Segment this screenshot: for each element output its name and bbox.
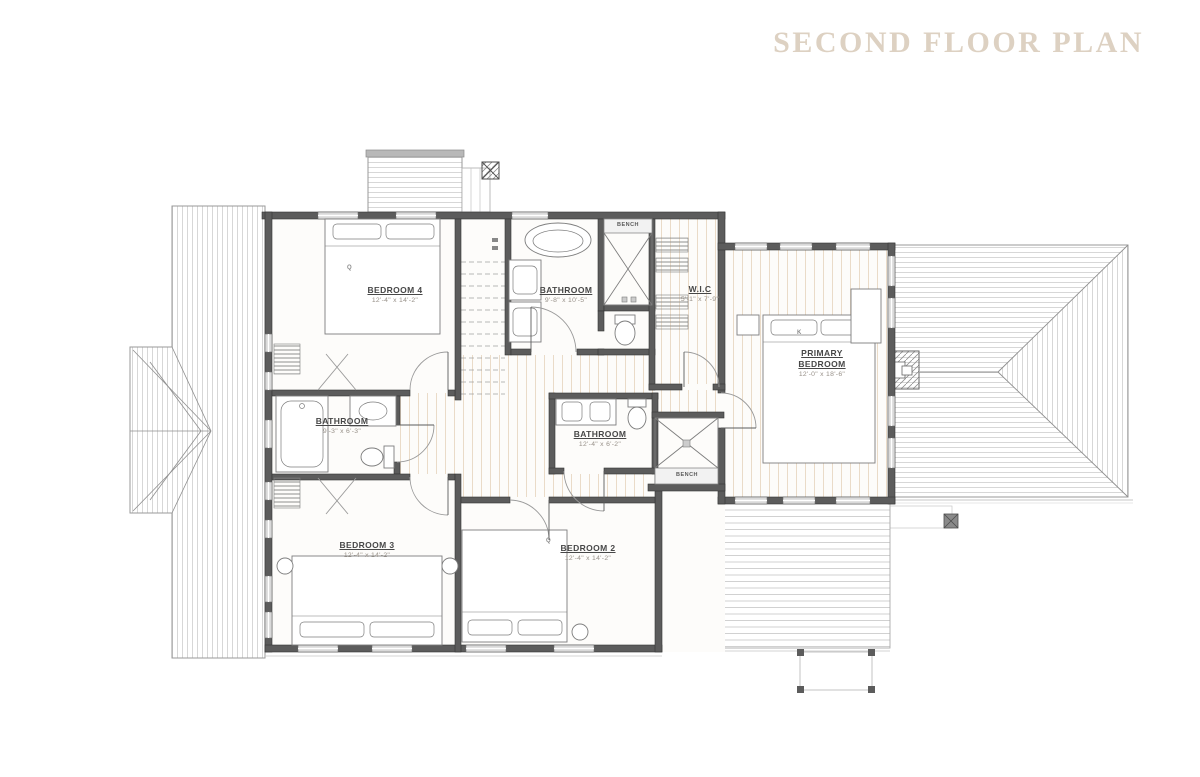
bench-label-shower: BENCH [676, 472, 698, 478]
floor-plan-drawing [0, 0, 1200, 777]
roof-left [130, 206, 265, 658]
floor-plan-page: SECOND FLOOR PLAN BEDROOM 4 12'-4" x 14'… [0, 0, 1200, 777]
page-title: SECOND FLOOR PLAN [773, 26, 1144, 60]
bed-size-tag-k-primary: K [797, 330, 801, 336]
roof-top [366, 150, 499, 212]
bed-size-tag-q-bedroom4: Q [347, 265, 352, 271]
bed-size-tag-q-bedroom2: Q [546, 538, 551, 544]
roof-right [890, 245, 1133, 528]
bench-label-top: BENCH [617, 222, 639, 228]
